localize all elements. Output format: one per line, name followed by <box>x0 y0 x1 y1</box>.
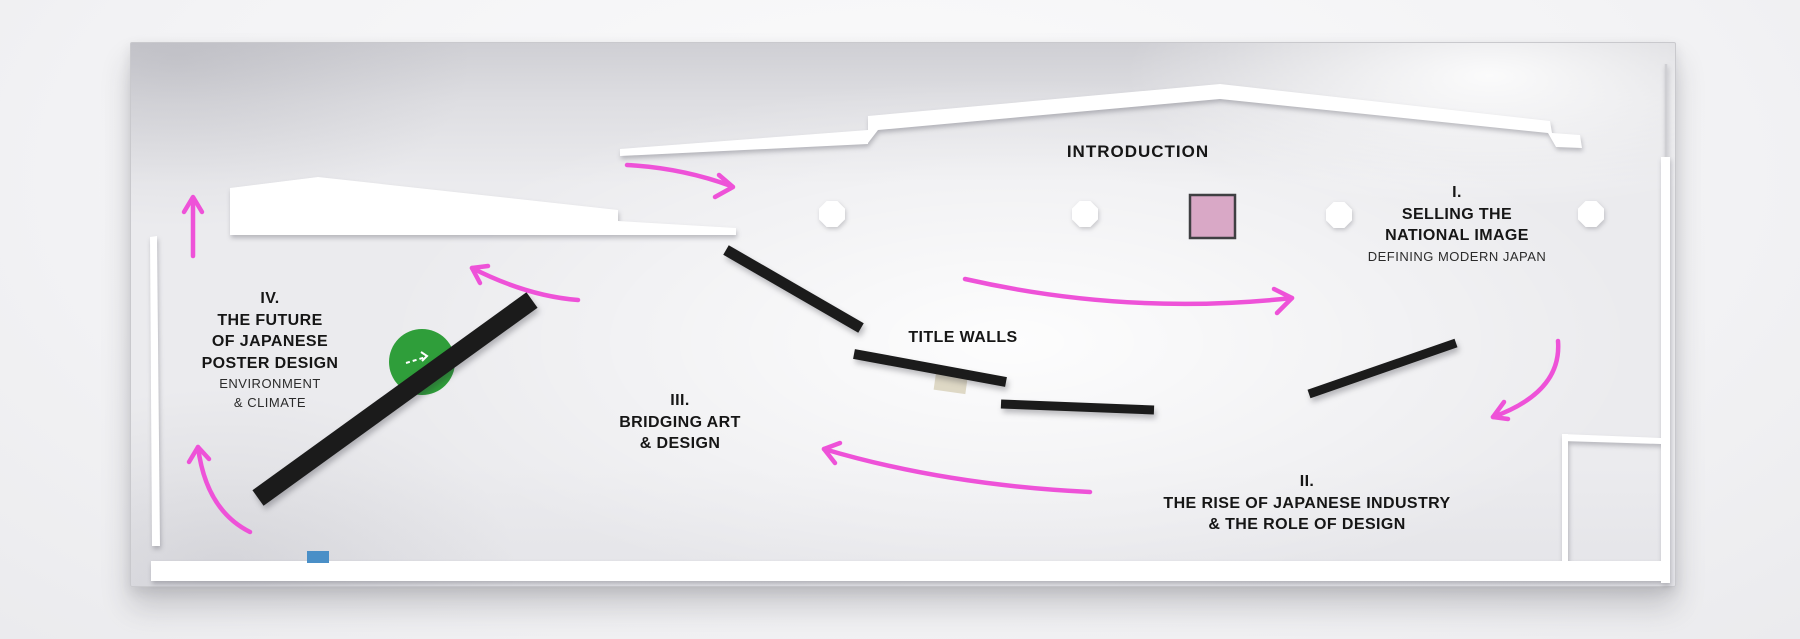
section3-title-line1: BRIDGING ART <box>619 412 741 434</box>
label-section4: IV. THE FUTURE OF JAPANESE POSTER DESIGN… <box>202 288 339 412</box>
floor-plan-scene: INTRODUCTION I. SELLING THE NATIONAL IMA… <box>0 0 1800 639</box>
alcove-wall-top <box>1562 434 1661 444</box>
roof-wall-left-segment <box>620 130 868 156</box>
label-title-walls: TITLE WALLS <box>908 327 1017 349</box>
bottom-wall <box>151 561 1669 581</box>
section2-number: II. <box>1163 471 1450 493</box>
blue-marker <box>307 551 329 563</box>
section2-title-line2: & THE ROLE OF DESIGN <box>1163 514 1450 536</box>
section4-title-line2: OF JAPANESE <box>202 331 339 353</box>
label-section2: II. THE RISE OF JAPANESE INDUSTRY & THE … <box>1163 471 1450 536</box>
title-wall-1 <box>854 354 1006 382</box>
flow-arrow-section4-turn <box>189 447 250 532</box>
title-wall-2 <box>1001 404 1154 410</box>
column-octagon-3 <box>1326 202 1352 228</box>
section4-subtitle-line2: & CLIMATE <box>202 393 339 412</box>
flow-arrow-intro-to-section1 <box>965 279 1292 313</box>
section2-title-line1: THE RISE OF JAPANESE INDUSTRY <box>1163 493 1450 515</box>
section3-number: III. <box>619 390 741 412</box>
column-octagon-4 <box>1578 201 1604 227</box>
section4-number: IV. <box>202 288 339 310</box>
roof-wall-main <box>868 84 1582 148</box>
section1-title-line1: SELLING THE <box>1368 204 1547 226</box>
section4-title-line3: POSTER DESIGN <box>202 353 339 375</box>
pink-pedestal <box>1190 195 1235 238</box>
section1-title-line2: NATIONAL IMAGE <box>1368 225 1547 247</box>
label-section3: III. BRIDGING ART & DESIGN <box>619 390 741 455</box>
side-wall-right <box>1661 157 1670 583</box>
side-wall-left <box>150 236 160 546</box>
partition-wall-upper-middle <box>726 250 861 328</box>
section4-title-line1: THE FUTURE <box>202 310 339 332</box>
label-introduction: INTRODUCTION <box>1067 141 1209 163</box>
flow-arrow-section1-to-section2 <box>1493 341 1558 419</box>
section3-title-line2: & DESIGN <box>619 433 741 455</box>
label-section1: I. SELLING THE NATIONAL IMAGE DEFINING M… <box>1368 182 1547 266</box>
entry-wedge-wall <box>230 177 736 235</box>
section1-number: I. <box>1368 182 1547 204</box>
section4-subtitle-line1: ENVIRONMENT <box>202 374 339 393</box>
section1-subtitle: DEFINING MODERN JAPAN <box>1368 247 1547 266</box>
column-octagon-1 <box>819 201 845 227</box>
column-octagon-2 <box>1072 201 1098 227</box>
flow-arrow-exit <box>184 197 202 256</box>
alcove-wall-left <box>1562 434 1568 562</box>
flow-arrow-section2-to-section3 <box>824 443 1090 492</box>
flow-arrow-entry <box>627 165 733 197</box>
partition-wall-section2 <box>1309 343 1456 394</box>
